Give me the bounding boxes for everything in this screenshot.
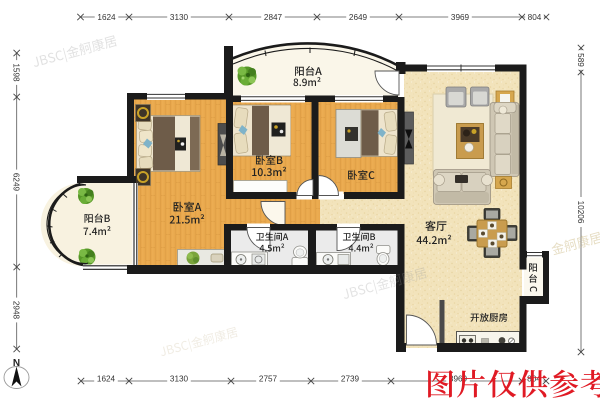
svg-text:2649: 2649 [349,13,368,22]
svg-text:2847: 2847 [264,13,283,22]
svg-text:1598: 1598 [12,63,21,82]
svg-text:3130: 3130 [170,13,189,22]
svg-text:589: 589 [576,53,585,67]
svg-text:2757: 2757 [259,375,278,384]
svg-text:2739: 2739 [341,375,360,384]
svg-text:6249: 6249 [12,173,21,192]
svg-text:1624: 1624 [97,13,116,22]
svg-text:3969: 3969 [451,13,470,22]
svg-text:10206: 10206 [576,201,585,224]
svg-text:3130: 3130 [170,375,189,384]
svg-text:1624: 1624 [97,375,116,384]
svg-text:804: 804 [528,13,542,22]
svg-text:2948: 2948 [12,301,21,320]
